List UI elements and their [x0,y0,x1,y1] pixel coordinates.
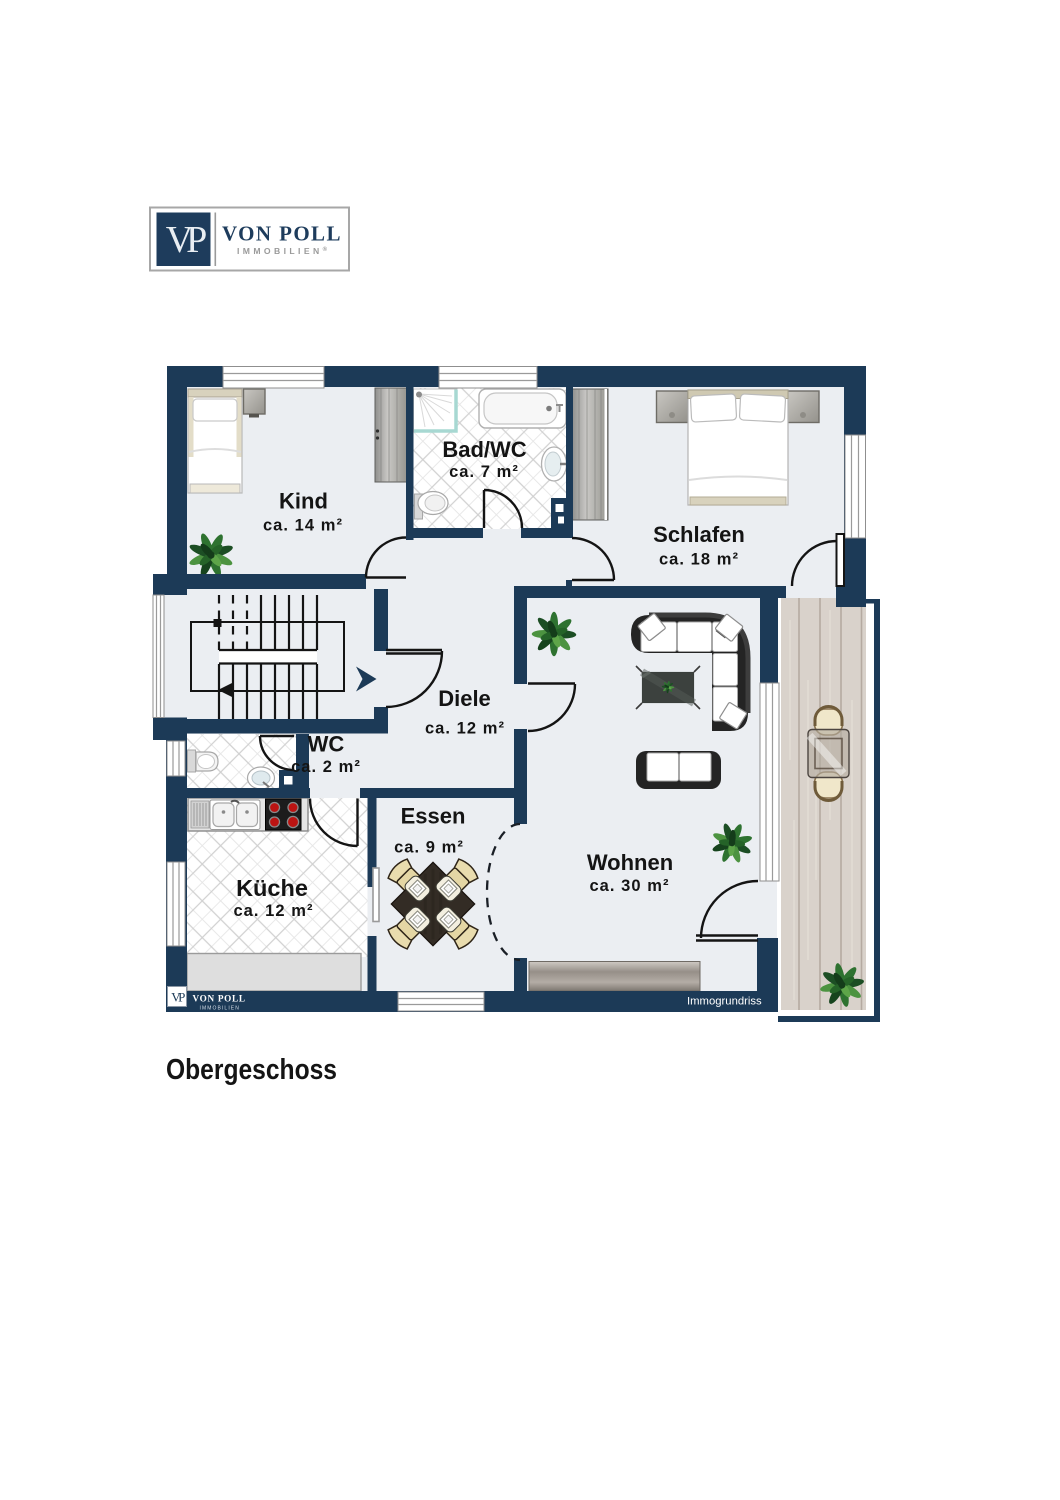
svg-text:Küche: Küche [236,875,308,901]
svg-text:VON POLL: VON POLL [193,994,246,1004]
svg-text:Wohnen: Wohnen [587,850,673,875]
svg-text:ca. 7 m²: ca. 7 m² [449,463,519,481]
svg-text:Essen: Essen [401,804,466,829]
svg-text:ca. 2 m²: ca. 2 m² [291,758,361,776]
svg-text:Bad/WC: Bad/WC [442,437,526,462]
svg-text:Obergeschoss: Obergeschoss [166,1054,337,1086]
svg-text:ca. 9 m²: ca. 9 m² [394,839,464,857]
svg-text:WC: WC [308,732,345,757]
svg-text:ca. 18 m²: ca. 18 m² [659,551,739,569]
svg-text:ca. 14 m²: ca. 14 m² [263,517,343,535]
svg-text:ca. 12 m²: ca. 12 m² [233,902,313,920]
svg-text:VON POLL: VON POLL [222,222,342,246]
svg-text:ca. 30 m²: ca. 30 m² [589,877,669,895]
svg-text:VP: VP [166,219,206,261]
svg-text:Immogrundriss: Immogrundriss [687,996,762,1008]
svg-text:IMMOBILIEN®: IMMOBILIEN® [237,246,330,256]
svg-text:Schlafen: Schlafen [653,522,745,547]
svg-text:ca. 12 m²: ca. 12 m² [425,720,505,738]
svg-text:Diele: Diele [438,686,491,711]
svg-text:Kind: Kind [279,489,328,514]
svg-text:IMMOBILIEN: IMMOBILIEN [200,1006,240,1012]
